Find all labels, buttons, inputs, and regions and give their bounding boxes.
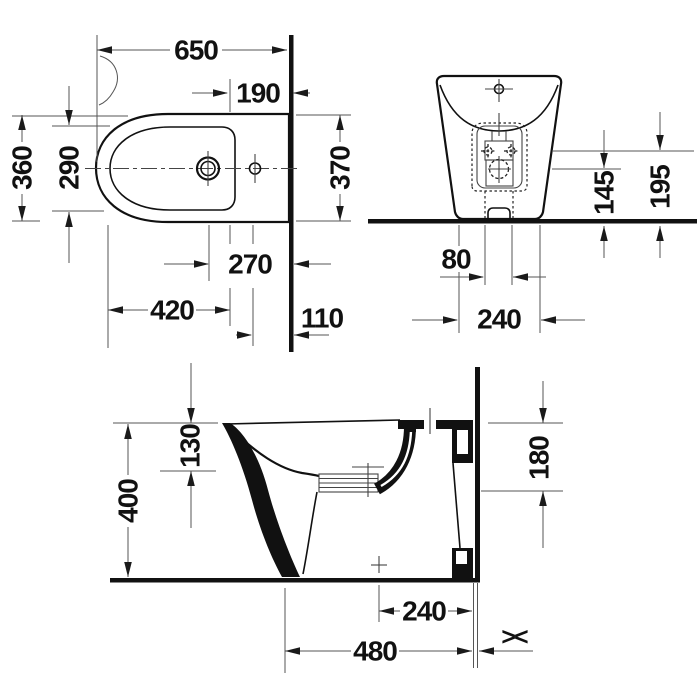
seat-section-side — [319, 474, 378, 492]
dim-label-80: 80 — [441, 244, 471, 275]
technical-drawing-canvas: 650 190 360 290 370 270 420 110 145 195 … — [0, 0, 700, 700]
side-view — [110, 363, 563, 673]
trap-section-side — [377, 420, 416, 489]
dim-label-400: 400 — [113, 479, 144, 523]
dim-label-420: 420 — [150, 295, 194, 326]
bidet-technical-drawing: 650 190 360 290 370 270 420 110 145 195 … — [0, 0, 700, 700]
dim-label-370: 370 — [325, 146, 356, 190]
dim-label-650: 650 — [174, 35, 218, 66]
flush-symbol-label: >< — [501, 623, 528, 651]
base-notch-front — [488, 208, 510, 219]
leader-arc — [99, 56, 117, 105]
dim-label-240-side: 240 — [402, 596, 446, 627]
dim-label-195: 195 — [645, 165, 676, 209]
dim-label-190: 190 — [236, 78, 280, 109]
floor-line-side — [110, 578, 480, 583]
front-edge-section-side — [222, 423, 300, 577]
wall-line-side — [475, 367, 480, 578]
dim-label-130: 130 — [175, 424, 206, 468]
dim-label-110: 110 — [301, 303, 344, 334]
dim-label-480: 480 — [353, 636, 397, 667]
rear-leg-line-side — [303, 492, 317, 574]
outlet-center-mark-side — [371, 556, 387, 573]
rim-top-line-side — [226, 420, 400, 424]
dim-label-180: 180 — [524, 436, 555, 480]
dim-label-145: 145 — [589, 171, 620, 215]
shaft-section-front — [472, 123, 527, 219]
dim-label-360: 360 — [7, 146, 38, 190]
dim-label-270: 270 — [228, 249, 272, 280]
dim-420 — [108, 225, 230, 348]
tap-hole-front — [485, 79, 513, 136]
tap-hole-plan — [197, 151, 219, 186]
dim-label-240-front: 240 — [477, 304, 521, 335]
dim-label-290: 290 — [54, 146, 85, 190]
skirt-line-side — [453, 463, 460, 548]
